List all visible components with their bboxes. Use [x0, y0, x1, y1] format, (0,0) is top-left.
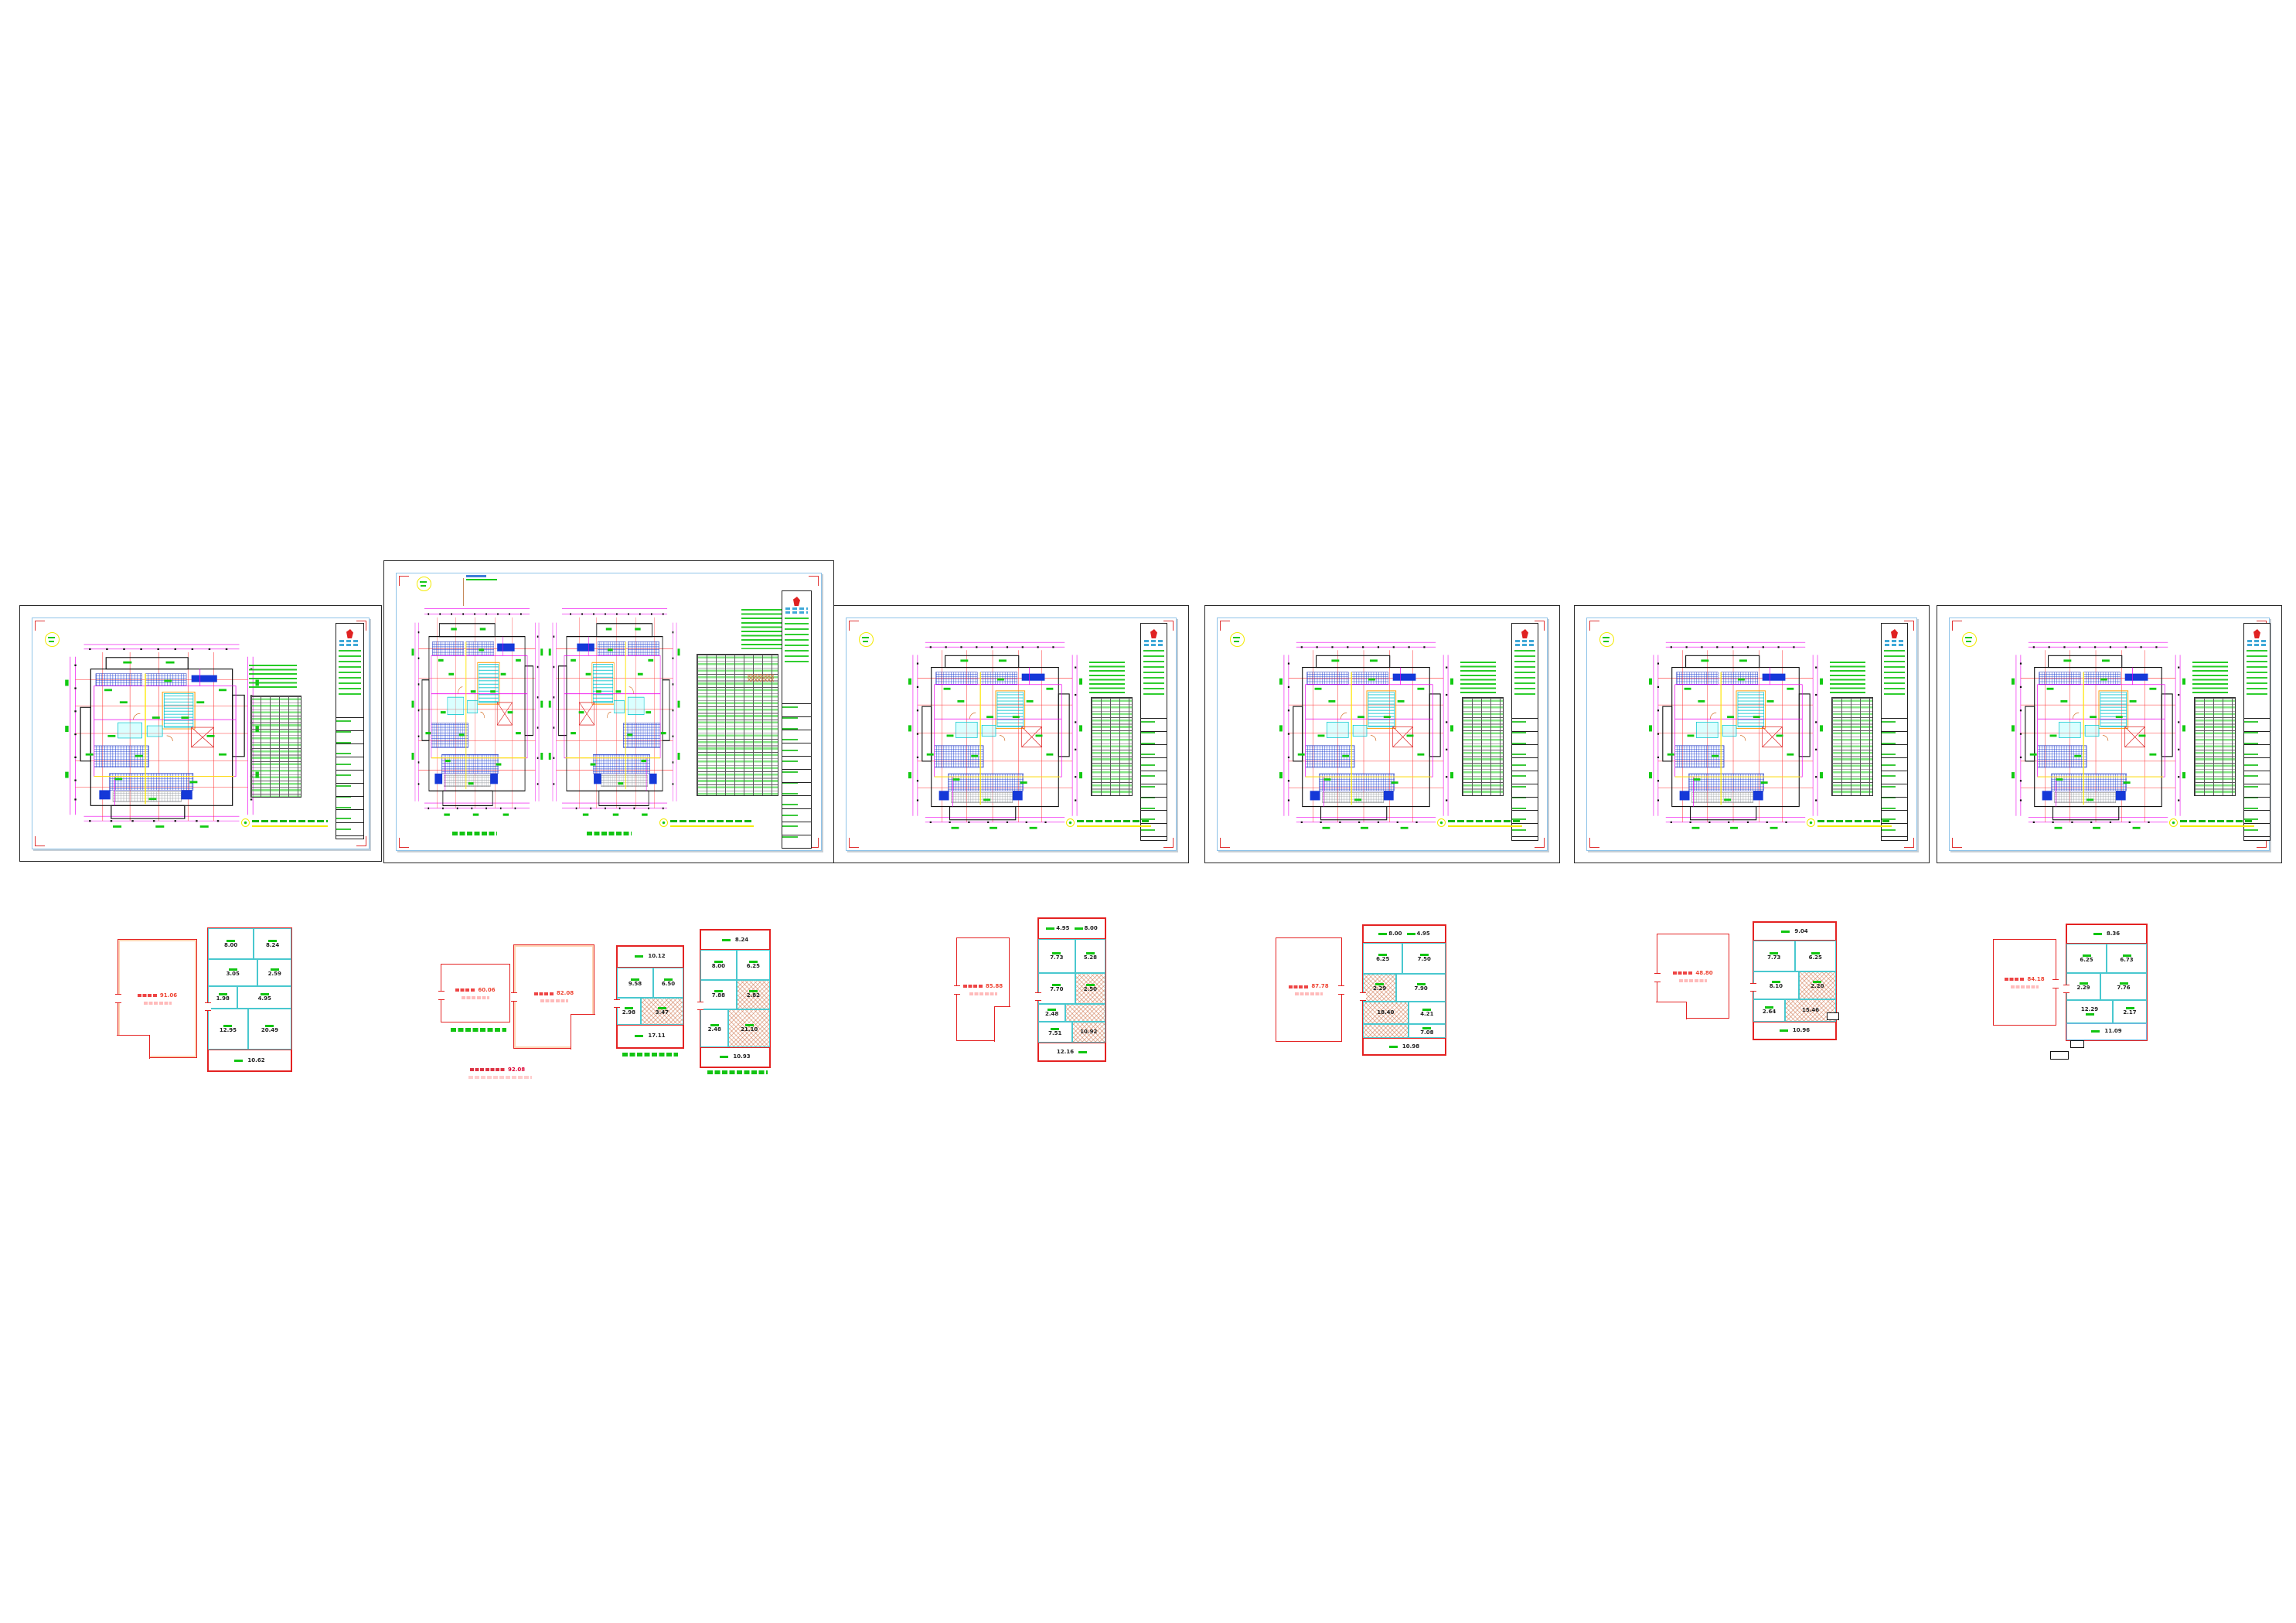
room-area: 10.96: [1793, 1028, 1810, 1033]
room-area: 10.12: [648, 954, 665, 959]
room-label: [720, 1056, 728, 1058]
room-area: 8.10: [1770, 984, 1783, 989]
area-outline-b1: 60.06: [441, 964, 510, 1022]
logo-mark-icon: [793, 597, 800, 606]
logo-mark-icon: [1150, 629, 1157, 638]
floor-plan: [1278, 631, 1454, 836]
green-text-block: [1514, 650, 1535, 695]
room-cell: 2.29: [2066, 973, 2100, 1000]
room-label: [1781, 931, 1790, 933]
sheet-title: [1066, 816, 1151, 827]
room-label: [1407, 933, 1415, 935]
room-area: 17.11: [648, 1033, 665, 1039]
room-area: 10.98: [1402, 1044, 1419, 1050]
green-text-block: [785, 618, 809, 662]
room-area: 12.29: [2081, 1007, 2098, 1012]
room-cell: 7.70: [1038, 973, 1075, 1004]
balcony-band: 10.12: [617, 946, 683, 968]
schedule-table: [1462, 697, 1504, 796]
area-outline-d: 87.78: [1276, 937, 1342, 1042]
blue-text-line: [1515, 644, 1535, 646]
room-cell-hatched: 21.10: [728, 1009, 770, 1047]
room-area: 10.62: [247, 1058, 264, 1063]
room-cell: 2.17: [2113, 1000, 2147, 1022]
room-cell: 6.25: [1363, 943, 1402, 973]
notes-text-block: [1089, 662, 1125, 694]
red-caption-text: [470, 1068, 506, 1070]
green-caption: [622, 1053, 678, 1056]
room-cell: 7.73: [1753, 941, 1795, 971]
notes-text-block: [1460, 662, 1496, 694]
leader-label: [466, 575, 500, 581]
room-area: 7.76: [2117, 985, 2130, 991]
title-block-rows: [336, 717, 363, 836]
green-caption: [707, 1070, 768, 1074]
room-cell: 20.49: [248, 1009, 291, 1050]
blue-text-line: [2247, 640, 2267, 642]
title-block-rows: [782, 703, 811, 846]
floor-plan-left: [410, 597, 543, 824]
schedule-table: [1831, 697, 1873, 796]
room-cell-hatched: 2.20: [1799, 971, 1836, 999]
area-value: 84.18: [2027, 977, 2044, 982]
area-label: 91.06: [138, 993, 177, 999]
room-area: 2.64: [1763, 1009, 1776, 1015]
detail-bubble-icon: [1599, 632, 1614, 647]
room-label: [1780, 1029, 1788, 1032]
blue-text-line: [339, 644, 360, 646]
plan-caption-right: [587, 832, 632, 835]
sheet-4: [1204, 605, 1560, 863]
blue-text-line: [785, 607, 808, 610]
floor-plan: [2010, 631, 2186, 836]
faded-label-text: [969, 992, 997, 995]
corner-mark: [35, 836, 45, 846]
detail-symbol: [2050, 1051, 2069, 1060]
sheet-title-text: [2180, 818, 2254, 827]
room-area: 18.40: [1377, 1010, 1394, 1016]
room-area: 10.92: [1080, 1029, 1097, 1035]
red-label-text: [455, 988, 475, 992]
room-cell: 2.64: [1753, 999, 1785, 1022]
room-label: [2086, 1013, 2094, 1016]
balcony-band: 4.95 8.00: [1038, 918, 1105, 939]
balcony-band: 8.36: [2066, 924, 2147, 944]
corner-mark: [809, 576, 819, 586]
balcony-band: 8.00 4.95: [1363, 925, 1446, 943]
corner-mark: [35, 621, 45, 631]
room-area: 6.50: [662, 982, 675, 987]
notes-text-block: [741, 609, 782, 649]
room-label: [1078, 1051, 1087, 1053]
room-cell-hatched: 3.47: [641, 998, 683, 1025]
room-area: 1.98: [216, 996, 230, 1002]
schedule-table: [250, 696, 301, 798]
room-area: 8.00: [1085, 926, 1098, 931]
detail-bubble-icon: [417, 577, 431, 591]
room-area: 10.93: [733, 1054, 750, 1060]
room-cell-hatched: 2.29: [1363, 974, 1396, 1002]
room-cell: 7.50: [1402, 943, 1446, 973]
red-caption-faded: [468, 1076, 532, 1079]
area-value: 60.06: [478, 988, 495, 993]
room-area: 2.98: [622, 1010, 635, 1016]
room-cell: 5.28: [1075, 939, 1105, 972]
scale-bubble-icon: [1807, 818, 1815, 827]
room-area: 8.36: [2107, 931, 2120, 937]
area-value: 87.78: [1311, 984, 1328, 989]
room-cell: 7.90: [1396, 974, 1446, 1002]
room-area: 4.95: [258, 996, 271, 1002]
blue-text-line: [1144, 640, 1163, 642]
notes-text-block: [249, 665, 297, 689]
title-block: [1511, 623, 1538, 841]
room-area: 12.16: [1057, 1050, 1074, 1055]
room-cell-hatched: [1363, 1024, 1409, 1038]
red-label-text: [138, 994, 158, 997]
sheet-1: [19, 605, 382, 862]
room-area: 20.49: [261, 1028, 278, 1033]
blue-text-line: [2247, 644, 2267, 646]
room-label: [234, 1060, 243, 1062]
room-cell: 6.73: [2107, 944, 2147, 973]
cad-canvas[interactable]: 91.06 8.00 8.24 3.05 2.59 1.98 4.95 12.9…: [0, 0, 2296, 1623]
sheet-title-text: [670, 818, 754, 827]
corner-mark: [1589, 838, 1599, 848]
room-area: 8.00: [1388, 931, 1402, 937]
sheet-6: [1937, 605, 2282, 863]
unit-plan-c: 4.95 8.00 7.73 5.28 7.70 2.50 2.48 7.51 …: [1037, 917, 1106, 1062]
room-cell: 7.88: [700, 980, 737, 1009]
faded-label-text: [2011, 985, 2039, 988]
room-area: 4.95: [1056, 926, 1069, 931]
blue-text-line: [1885, 640, 1904, 642]
area-outline-e: 48.80: [1657, 934, 1729, 1019]
room-area: 21.10: [741, 1027, 758, 1033]
room-cell: 9.58: [617, 968, 653, 999]
floor-plan: [907, 631, 1083, 836]
room-area: 2.50: [1084, 987, 1097, 992]
room-cell: 12.29: [2066, 1000, 2113, 1022]
room-cell: 8.00: [700, 950, 737, 979]
area-value: 48.80: [1695, 971, 1712, 976]
red-label-text: [963, 985, 983, 988]
green-text-block: [339, 650, 361, 695]
room-area: 7.73: [1050, 955, 1063, 961]
room-cell-hatched: [1065, 1004, 1105, 1022]
room-area: 7.08: [1420, 1030, 1433, 1036]
room-area: 7.70: [1050, 987, 1063, 992]
room-cell: 2.98: [617, 998, 641, 1025]
corner-mark: [849, 621, 859, 631]
room-cell: 6.25: [737, 950, 770, 979]
room-area: 8.00: [712, 964, 725, 969]
sheet-title-text: [1448, 818, 1522, 827]
scale-bubble-icon: [2169, 818, 2178, 827]
red-label-text: [1289, 985, 1309, 988]
detail-bubble-icon: [859, 632, 874, 647]
room-cell: 2.59: [257, 959, 291, 986]
title-block: [1140, 623, 1167, 841]
area-value: 82.08: [557, 991, 574, 996]
balcony-band: 9.04: [1753, 922, 1836, 941]
balcony-band: 10.93: [700, 1047, 770, 1067]
room-area: 8.24: [735, 937, 748, 943]
room-area: 3.05: [227, 971, 240, 977]
room-area: 2.17: [2123, 1010, 2136, 1016]
sheet-2: [383, 560, 834, 863]
area-outline-f: 84.18: [1993, 939, 2056, 1026]
balcony-band: 10.62: [208, 1050, 291, 1071]
corner-mark: [399, 576, 409, 586]
floor-plan-right: [548, 597, 681, 824]
room-cell: 7.08: [1409, 1024, 1446, 1038]
detail-symbol: [1827, 1012, 1839, 1020]
scale-bubble-icon: [1437, 818, 1446, 827]
title-block: [336, 623, 364, 839]
room-cell: 6.25: [2066, 944, 2107, 973]
detail-symbol: [2070, 1040, 2084, 1048]
room-cell: 2.48: [700, 1009, 728, 1047]
room-area: 8.24: [266, 943, 279, 948]
blue-text-line: [339, 640, 360, 642]
logo-mark-icon: [1891, 629, 1898, 638]
notes-text-block: [2192, 662, 2228, 694]
floor-plan: [63, 634, 260, 835]
balcony-band: 17.11: [617, 1025, 683, 1048]
sheet-title: [241, 816, 328, 827]
room-cell-hatched: 18.40: [1363, 1002, 1409, 1025]
room-area: 2.29: [1373, 986, 1386, 992]
sheet-title: [2169, 816, 2254, 827]
room-label: [2091, 1030, 2100, 1033]
logo-mark-icon: [1521, 629, 1528, 638]
room-label: [635, 1035, 643, 1037]
room-label: [722, 939, 731, 941]
room-area: 2.59: [268, 971, 281, 977]
detail-bubble-icon: [1230, 632, 1245, 647]
sheet-title-text: [1817, 818, 1892, 827]
room-area: 6.73: [2120, 958, 2133, 963]
room-cell: 3.05: [208, 959, 257, 986]
room-label: [2093, 933, 2102, 935]
green-text-block: [2247, 650, 2267, 695]
room-area: 9.58: [629, 982, 642, 987]
unit-plan-a: 8.00 8.24 3.05 2.59 1.98 4.95 12.95 20.4…: [207, 927, 292, 1072]
unit-plan-b1: 10.12 9.58 6.50 2.98 3.47 17.11: [616, 945, 684, 1049]
sheet-title: [1807, 816, 1892, 827]
red-label-text: [534, 992, 554, 995]
balcony-band: 8.24: [700, 930, 770, 950]
room-label: [1046, 927, 1054, 930]
room-area: 2.20: [1811, 984, 1824, 989]
red-label-text: [2005, 978, 2025, 981]
room-area: 7.51: [1048, 1031, 1061, 1036]
room-area: 5.28: [1084, 955, 1097, 961]
room-area: 2.48: [708, 1027, 721, 1033]
area-outline-b2: 82.08: [513, 944, 594, 1049]
title-block: [1881, 623, 1908, 841]
room-cell: 7.73: [1038, 939, 1075, 972]
blue-text-line: [1144, 644, 1163, 646]
balcony-band: 12.16: [1038, 1043, 1105, 1061]
room-label: [1378, 933, 1387, 935]
unit-plan-f: 8.36 6.25 6.73 2.29 7.76 12.29 2.17 11.0…: [2066, 924, 2148, 1041]
area-outline-a: 91.06: [118, 939, 197, 1058]
room-area: 3.47: [656, 1010, 669, 1016]
room-cell: 4.21: [1409, 1002, 1446, 1025]
scale-bubble-icon: [1066, 818, 1075, 827]
room-label: [1075, 927, 1083, 930]
area-value: 85.88: [986, 984, 1003, 989]
room-cell-hatched: 2.50: [1075, 973, 1105, 1004]
title-block: [782, 590, 812, 849]
title-block: [2243, 623, 2270, 841]
schedule-table: [1091, 697, 1133, 796]
corner-mark: [1589, 621, 1599, 631]
room-area: 12.95: [220, 1028, 237, 1033]
sheet-5: [1574, 605, 1930, 863]
corner-mark: [1952, 838, 1962, 848]
green-text-block: [1143, 650, 1164, 695]
room-cell: 6.25: [1795, 941, 1837, 971]
corner-mark: [1220, 838, 1230, 848]
room-cell: 1.98: [208, 986, 237, 1009]
material-hatch-swatch: [748, 674, 774, 682]
room-area: 2.48: [1045, 1012, 1058, 1017]
room-label: [635, 955, 643, 958]
detail-bubble-icon: [45, 632, 60, 647]
room-cell: 12.95: [208, 1009, 248, 1050]
faded-label-text: [540, 999, 568, 1002]
room-area: 11.09: [2104, 1029, 2121, 1034]
sheet-title-text: [252, 818, 328, 827]
detail-bubble-icon: [1962, 632, 1977, 647]
red-caption-value: 92.08: [508, 1067, 525, 1073]
room-cell: 2.48: [1038, 1004, 1065, 1022]
green-caption: [451, 1028, 506, 1032]
sheet-title: [659, 816, 754, 827]
faded-label-text: [1295, 992, 1323, 995]
faded-label-text: [1679, 979, 1707, 982]
logo-mark-icon: [2253, 629, 2260, 638]
blue-text-line: [785, 611, 808, 614]
room-area: 6.25: [1376, 957, 1389, 962]
room-area: 2.82: [747, 993, 760, 999]
corner-mark: [1220, 621, 1230, 631]
faded-label-text: [144, 1002, 172, 1005]
room-cell: 7.51: [1038, 1022, 1072, 1043]
room-area: 7.50: [1418, 957, 1431, 962]
schedule-table: [2194, 697, 2236, 796]
corner-mark: [1952, 621, 1962, 631]
unit-plan-b2: 8.24 8.00 6.25 7.88 2.82 2.48 21.10 10.9…: [700, 929, 771, 1068]
corner-mark: [399, 838, 409, 848]
room-area: 9.04: [1794, 929, 1807, 934]
room-cell: 6.50: [653, 968, 683, 999]
blue-text-line: [1885, 644, 1904, 646]
room-label: [1389, 1046, 1398, 1048]
room-cell-hatched: 2.82: [737, 980, 770, 1009]
room-area: 7.73: [1767, 955, 1780, 961]
balcony-band: 11.09: [2066, 1023, 2147, 1040]
faded-label-text: [462, 996, 489, 999]
room-area: 6.25: [1809, 955, 1822, 961]
room-area: 7.88: [712, 993, 725, 999]
room-area: 4.21: [1420, 1012, 1433, 1017]
unit-plan-e: 9.04 7.73 6.25 8.10 2.20 2.64 15.46 10.9…: [1753, 921, 1837, 1040]
room-cell: 7.76: [2100, 973, 2147, 1000]
room-area: 6.25: [747, 964, 760, 969]
unit-plan-d: 8.00 4.95 6.25 7.50 2.29 7.90 18.40 4.21…: [1362, 924, 1446, 1056]
room-area: 15.46: [1802, 1008, 1819, 1013]
logo-mark-icon: [346, 629, 353, 638]
balcony-band: 10.98: [1363, 1038, 1446, 1055]
room-cell: 8.10: [1753, 971, 1799, 999]
green-text-block: [1884, 650, 1905, 695]
room-area: 6.25: [2080, 958, 2093, 963]
room-cell: 8.24: [254, 928, 291, 959]
blue-text-line: [1515, 640, 1535, 642]
scale-bubble-icon: [659, 818, 668, 827]
balcony-band: 10.96: [1753, 1022, 1836, 1039]
area-outline-c: 85.88: [956, 937, 1010, 1041]
room-area: 4.95: [1417, 931, 1430, 937]
corner-mark: [849, 838, 859, 848]
sheet-3: [833, 605, 1189, 863]
room-area: 8.00: [224, 943, 237, 948]
floor-plan: [1647, 631, 1824, 836]
red-caption: 92.08: [470, 1067, 525, 1073]
room-cell: 8.00: [208, 928, 254, 959]
sheet-title: [1437, 816, 1522, 827]
room-cell-hatched: 10.92: [1072, 1022, 1106, 1043]
notes-text-block: [1830, 662, 1865, 694]
scale-bubble-icon: [241, 818, 250, 827]
red-label-text: [1673, 971, 1693, 975]
room-cell: 4.95: [237, 986, 291, 1009]
sheet-title-text: [1077, 818, 1151, 827]
room-area: 2.29: [2076, 985, 2090, 991]
room-area: 7.90: [1414, 986, 1427, 992]
area-value: 91.06: [160, 993, 177, 999]
plan-caption-left: [452, 832, 497, 835]
